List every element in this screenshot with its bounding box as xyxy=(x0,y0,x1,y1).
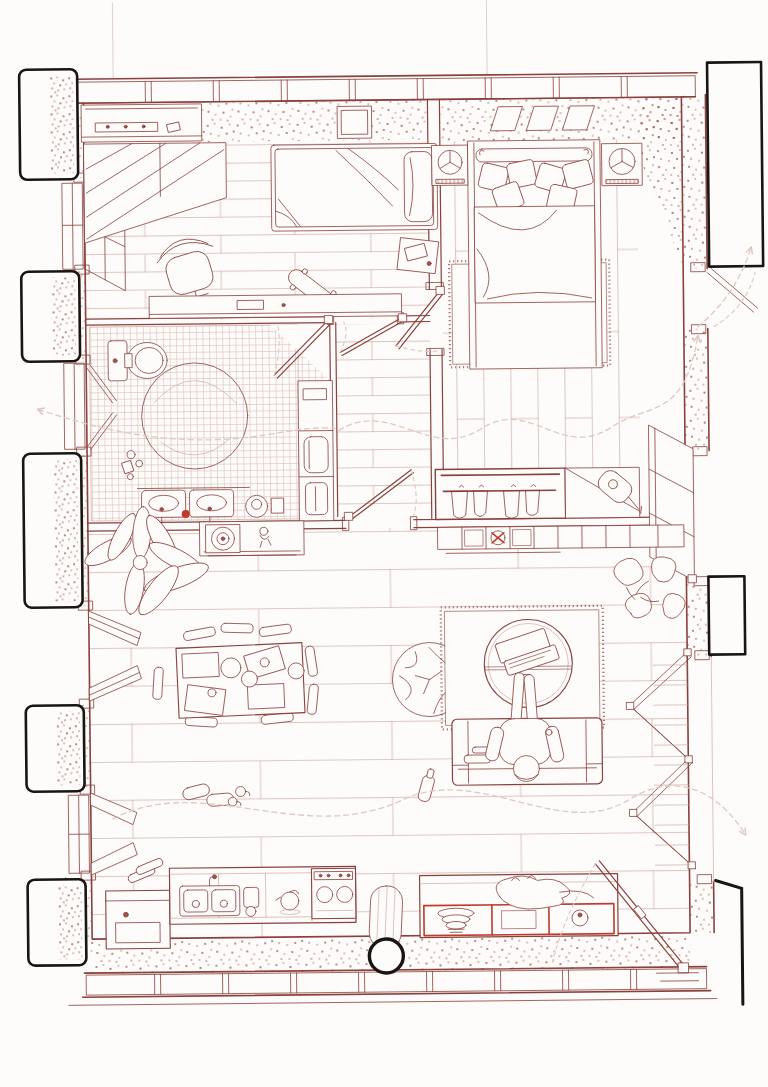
brick-dividers-bottom xyxy=(155,969,637,994)
black-column xyxy=(369,939,403,973)
kitchen-counter xyxy=(169,866,356,924)
tall-cabinet-fridge xyxy=(298,381,333,521)
small-pot xyxy=(572,910,588,926)
cooktop xyxy=(311,868,356,918)
floor-plan-figure xyxy=(0,0,768,1087)
toilet xyxy=(108,340,167,381)
pinwheel xyxy=(491,531,505,545)
plan xyxy=(18,0,768,1012)
guide-lines xyxy=(112,0,487,79)
window-outward-top-right xyxy=(707,268,758,327)
bedside-table-book xyxy=(397,237,439,274)
black-panel-mid-right xyxy=(708,576,745,654)
double-bed xyxy=(468,140,602,369)
exterior-piers-left xyxy=(19,69,86,966)
sideboard-record-player xyxy=(200,521,304,556)
skylight-panels xyxy=(490,106,594,131)
black-panel-top-right xyxy=(707,62,763,267)
island-bench xyxy=(420,874,619,938)
pier xyxy=(26,705,85,792)
nightstand-right xyxy=(602,143,642,185)
pier xyxy=(21,271,80,362)
floor-plan-svg xyxy=(0,0,768,1087)
black-edge-bottom-right xyxy=(716,880,743,1004)
pier xyxy=(28,879,87,966)
pier xyxy=(23,453,83,608)
exterior-panels-right xyxy=(703,62,768,1005)
nightstand-left xyxy=(432,145,468,185)
pier xyxy=(19,69,78,180)
wall-niche xyxy=(337,106,371,138)
wall-shelf xyxy=(81,104,201,142)
single-bed xyxy=(271,143,438,231)
drawing-sheet xyxy=(0,0,768,1087)
desk xyxy=(149,294,401,319)
